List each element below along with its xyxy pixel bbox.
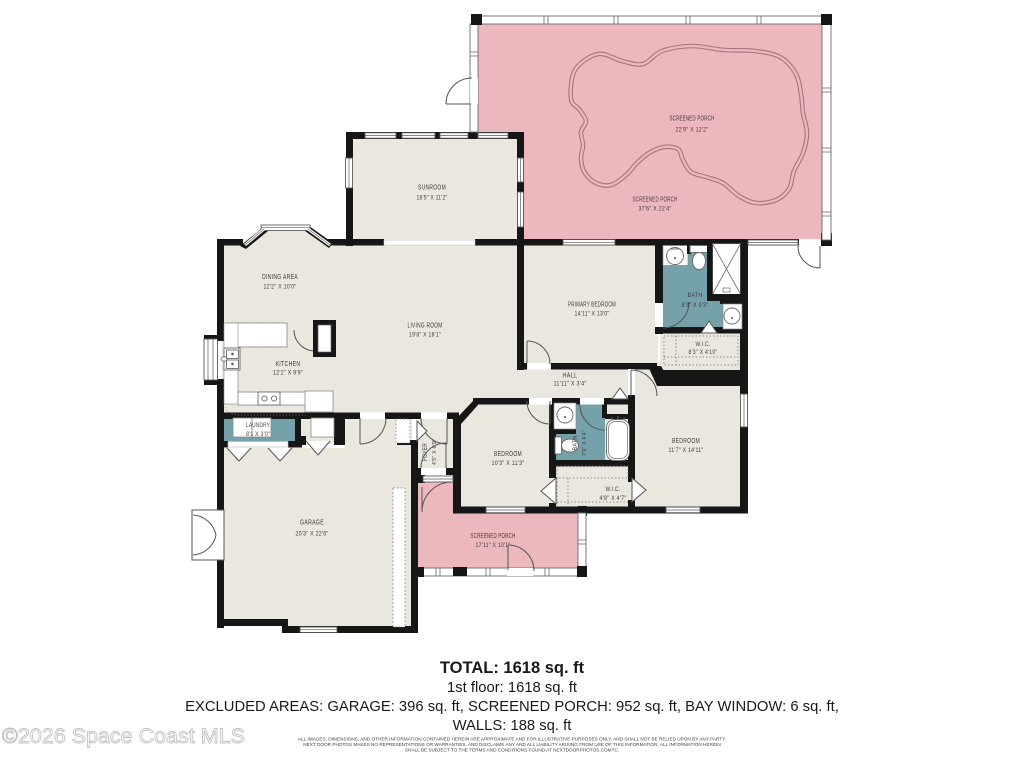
svg-text:11'11" X 3'4": 11'11" X 3'4" (554, 381, 587, 388)
svg-text:SHALL BE SUBJECT TO THE TERMS: SHALL BE SUBJECT TO THE TERMS AND CONDIT… (405, 748, 619, 753)
svg-text:LAUNDRY: LAUNDRY (246, 422, 270, 429)
svg-text:20'3" X 22'6": 20'3" X 22'6" (296, 531, 329, 538)
svg-text:1st floor: 1618 sq. ft: 1st floor: 1618 sq. ft (447, 680, 577, 696)
svg-text:22'9" X 12'2": 22'9" X 12'2" (676, 127, 709, 134)
svg-text:SCREENED PORCH: SCREENED PORCH (670, 116, 715, 123)
svg-text:W.I.C.: W.I.C. (606, 486, 621, 493)
svg-text:19'8" X 18'1": 19'8" X 18'1" (409, 332, 441, 339)
svg-text:BATH: BATH (572, 436, 579, 451)
svg-text:11'7" X 14'11": 11'7" X 14'11" (669, 447, 704, 454)
svg-text:DINING AREA: DINING AREA (262, 274, 298, 281)
svg-text:BEDROOM: BEDROOM (672, 438, 700, 445)
svg-text:4'5" X 6'9": 4'5" X 6'9" (432, 439, 438, 465)
svg-text:BATH: BATH (688, 292, 703, 299)
svg-text:37'6" X 22'4": 37'6" X 22'4" (639, 206, 672, 213)
svg-text:PRIMARY BEDROOM: PRIMARY BEDROOM (568, 302, 616, 309)
svg-text:©2026 Space Coast MLS: ©2026 Space Coast MLS (2, 724, 245, 748)
svg-text:SCREENED PORCH: SCREENED PORCH (633, 197, 678, 204)
svg-text:ALL IMAGES, DIMENSIONS, AND OT: ALL IMAGES, DIMENSIONS, AND OTHER INFORM… (298, 737, 726, 742)
svg-text:10'3" X 11'3": 10'3" X 11'3" (492, 460, 525, 467)
svg-text:12'2" X 10'0": 12'2" X 10'0" (264, 284, 297, 291)
svg-text:KITCHEN: KITCHEN (276, 361, 301, 368)
svg-text:SCREENED PORCH: SCREENED PORCH (471, 533, 516, 540)
svg-text:7'9" X 6'4": 7'9" X 6'4" (582, 430, 588, 456)
svg-text:SUNROOM: SUNROOM (418, 185, 446, 192)
svg-text:GARAGE: GARAGE (300, 520, 324, 527)
svg-text:NEXT DOOR PHOTOS MAKES NO REPR: NEXT DOOR PHOTOS MAKES NO REPRESENTATION… (303, 742, 721, 747)
svg-text:12'2" X 9'9": 12'2" X 9'9" (273, 370, 303, 377)
svg-text:FOYER: FOYER (422, 443, 429, 461)
svg-text:4'8" X 4'7": 4'8" X 4'7" (600, 495, 627, 502)
svg-text:18'5" X 11'2": 18'5" X 11'2" (417, 195, 448, 202)
svg-text:HALL: HALL (563, 373, 578, 380)
svg-text:EXCLUDED AREAS: GARAGE: 396 sq: EXCLUDED AREAS: GARAGE: 396 sq. ft, SCRE… (185, 699, 839, 715)
svg-text:8'3" X 4'10": 8'3" X 4'10" (689, 349, 718, 356)
svg-text:8'3" X 9'3": 8'3" X 9'3" (682, 302, 709, 309)
svg-text:TOTAL: 1618 sq. ft: TOTAL: 1618 sq. ft (440, 659, 585, 677)
svg-text:8'1 X 3'0": 8'1 X 3'0" (246, 431, 270, 438)
svg-text:WALLS: 188 sq. ft: WALLS: 188 sq. ft (453, 718, 572, 734)
svg-text:LIVING ROOM: LIVING ROOM (408, 323, 443, 330)
svg-text:17'11" X 10'1": 17'11" X 10'1" (476, 542, 511, 549)
svg-text:BEDROOM: BEDROOM (494, 451, 522, 458)
svg-text:14'11" X 13'0": 14'11" X 13'0" (575, 311, 610, 318)
svg-text:W.I.C.: W.I.C. (696, 341, 711, 348)
